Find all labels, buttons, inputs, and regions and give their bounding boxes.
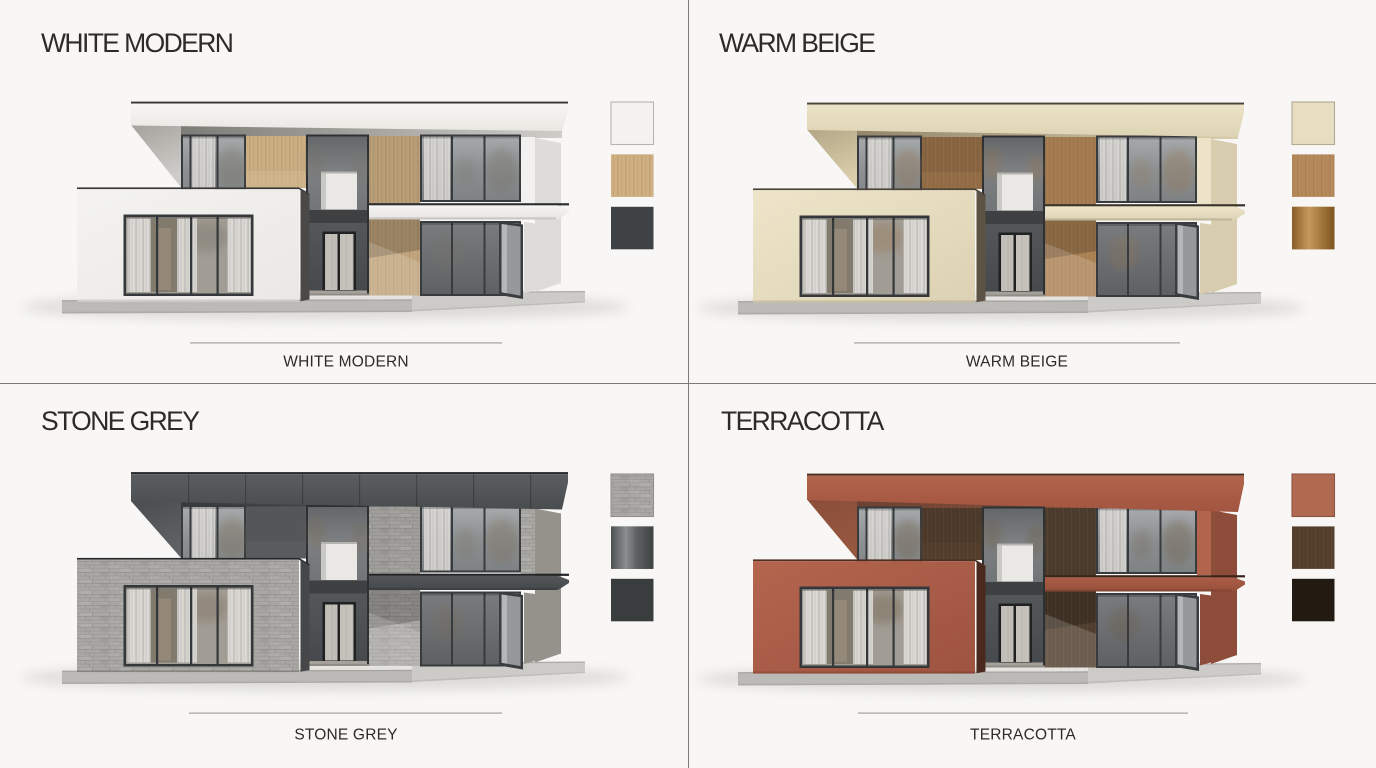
svg-text:WHITE MODERN: WHITE MODERN bbox=[283, 354, 409, 371]
svg-text:TERRACOTTA: TERRACOTTA bbox=[970, 727, 1076, 744]
svg-text:STONE GREY: STONE GREY bbox=[41, 406, 200, 436]
svg-text:TERRACOTTA: TERRACOTTA bbox=[721, 406, 885, 436]
svg-text:WARM BEIGE: WARM BEIGE bbox=[966, 354, 1068, 371]
svg-text:WHITE MODERN: WHITE MODERN bbox=[41, 28, 232, 58]
svg-text:STONE GREY: STONE GREY bbox=[294, 727, 397, 744]
svg-text:WARM BEIGE: WARM BEIGE bbox=[719, 28, 875, 58]
